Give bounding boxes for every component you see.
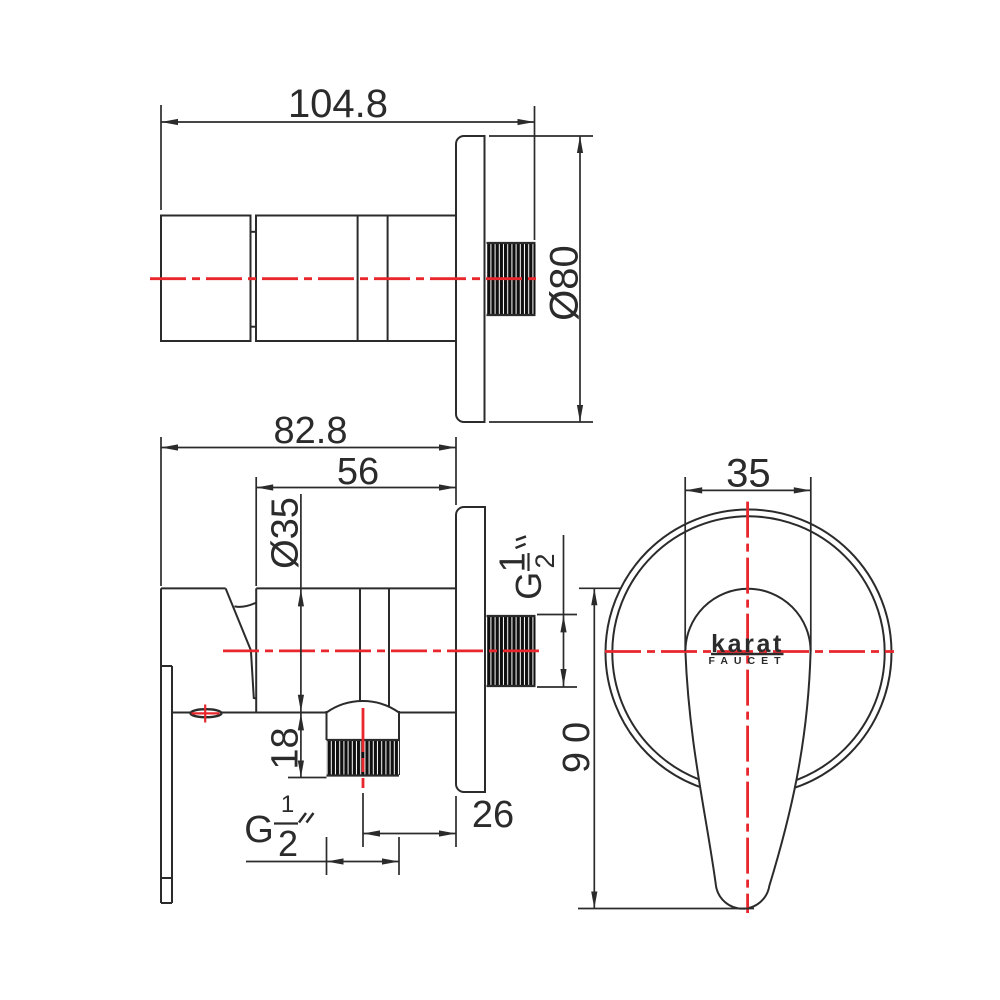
svg-text:2: 2: [278, 823, 298, 864]
svg-text:G: G: [244, 809, 274, 851]
svg-text:Ø80: Ø80: [543, 245, 587, 321]
svg-text:104.8: 104.8: [288, 82, 388, 126]
svg-text:2: 2: [530, 553, 560, 568]
svg-text:G: G: [508, 572, 549, 600]
svg-text:26: 26: [472, 794, 514, 836]
svg-text:1: 1: [492, 552, 533, 572]
svg-text:18: 18: [265, 727, 307, 769]
svg-text:Ø35: Ø35: [265, 497, 307, 569]
svg-text:35: 35: [726, 452, 771, 496]
svg-text:82.8: 82.8: [274, 410, 348, 452]
svg-text:90: 90: [556, 713, 598, 773]
svg-text:56: 56: [337, 451, 379, 493]
svg-text:FAUCET: FAUCET: [709, 655, 787, 667]
svg-text:1: 1: [281, 791, 294, 818]
